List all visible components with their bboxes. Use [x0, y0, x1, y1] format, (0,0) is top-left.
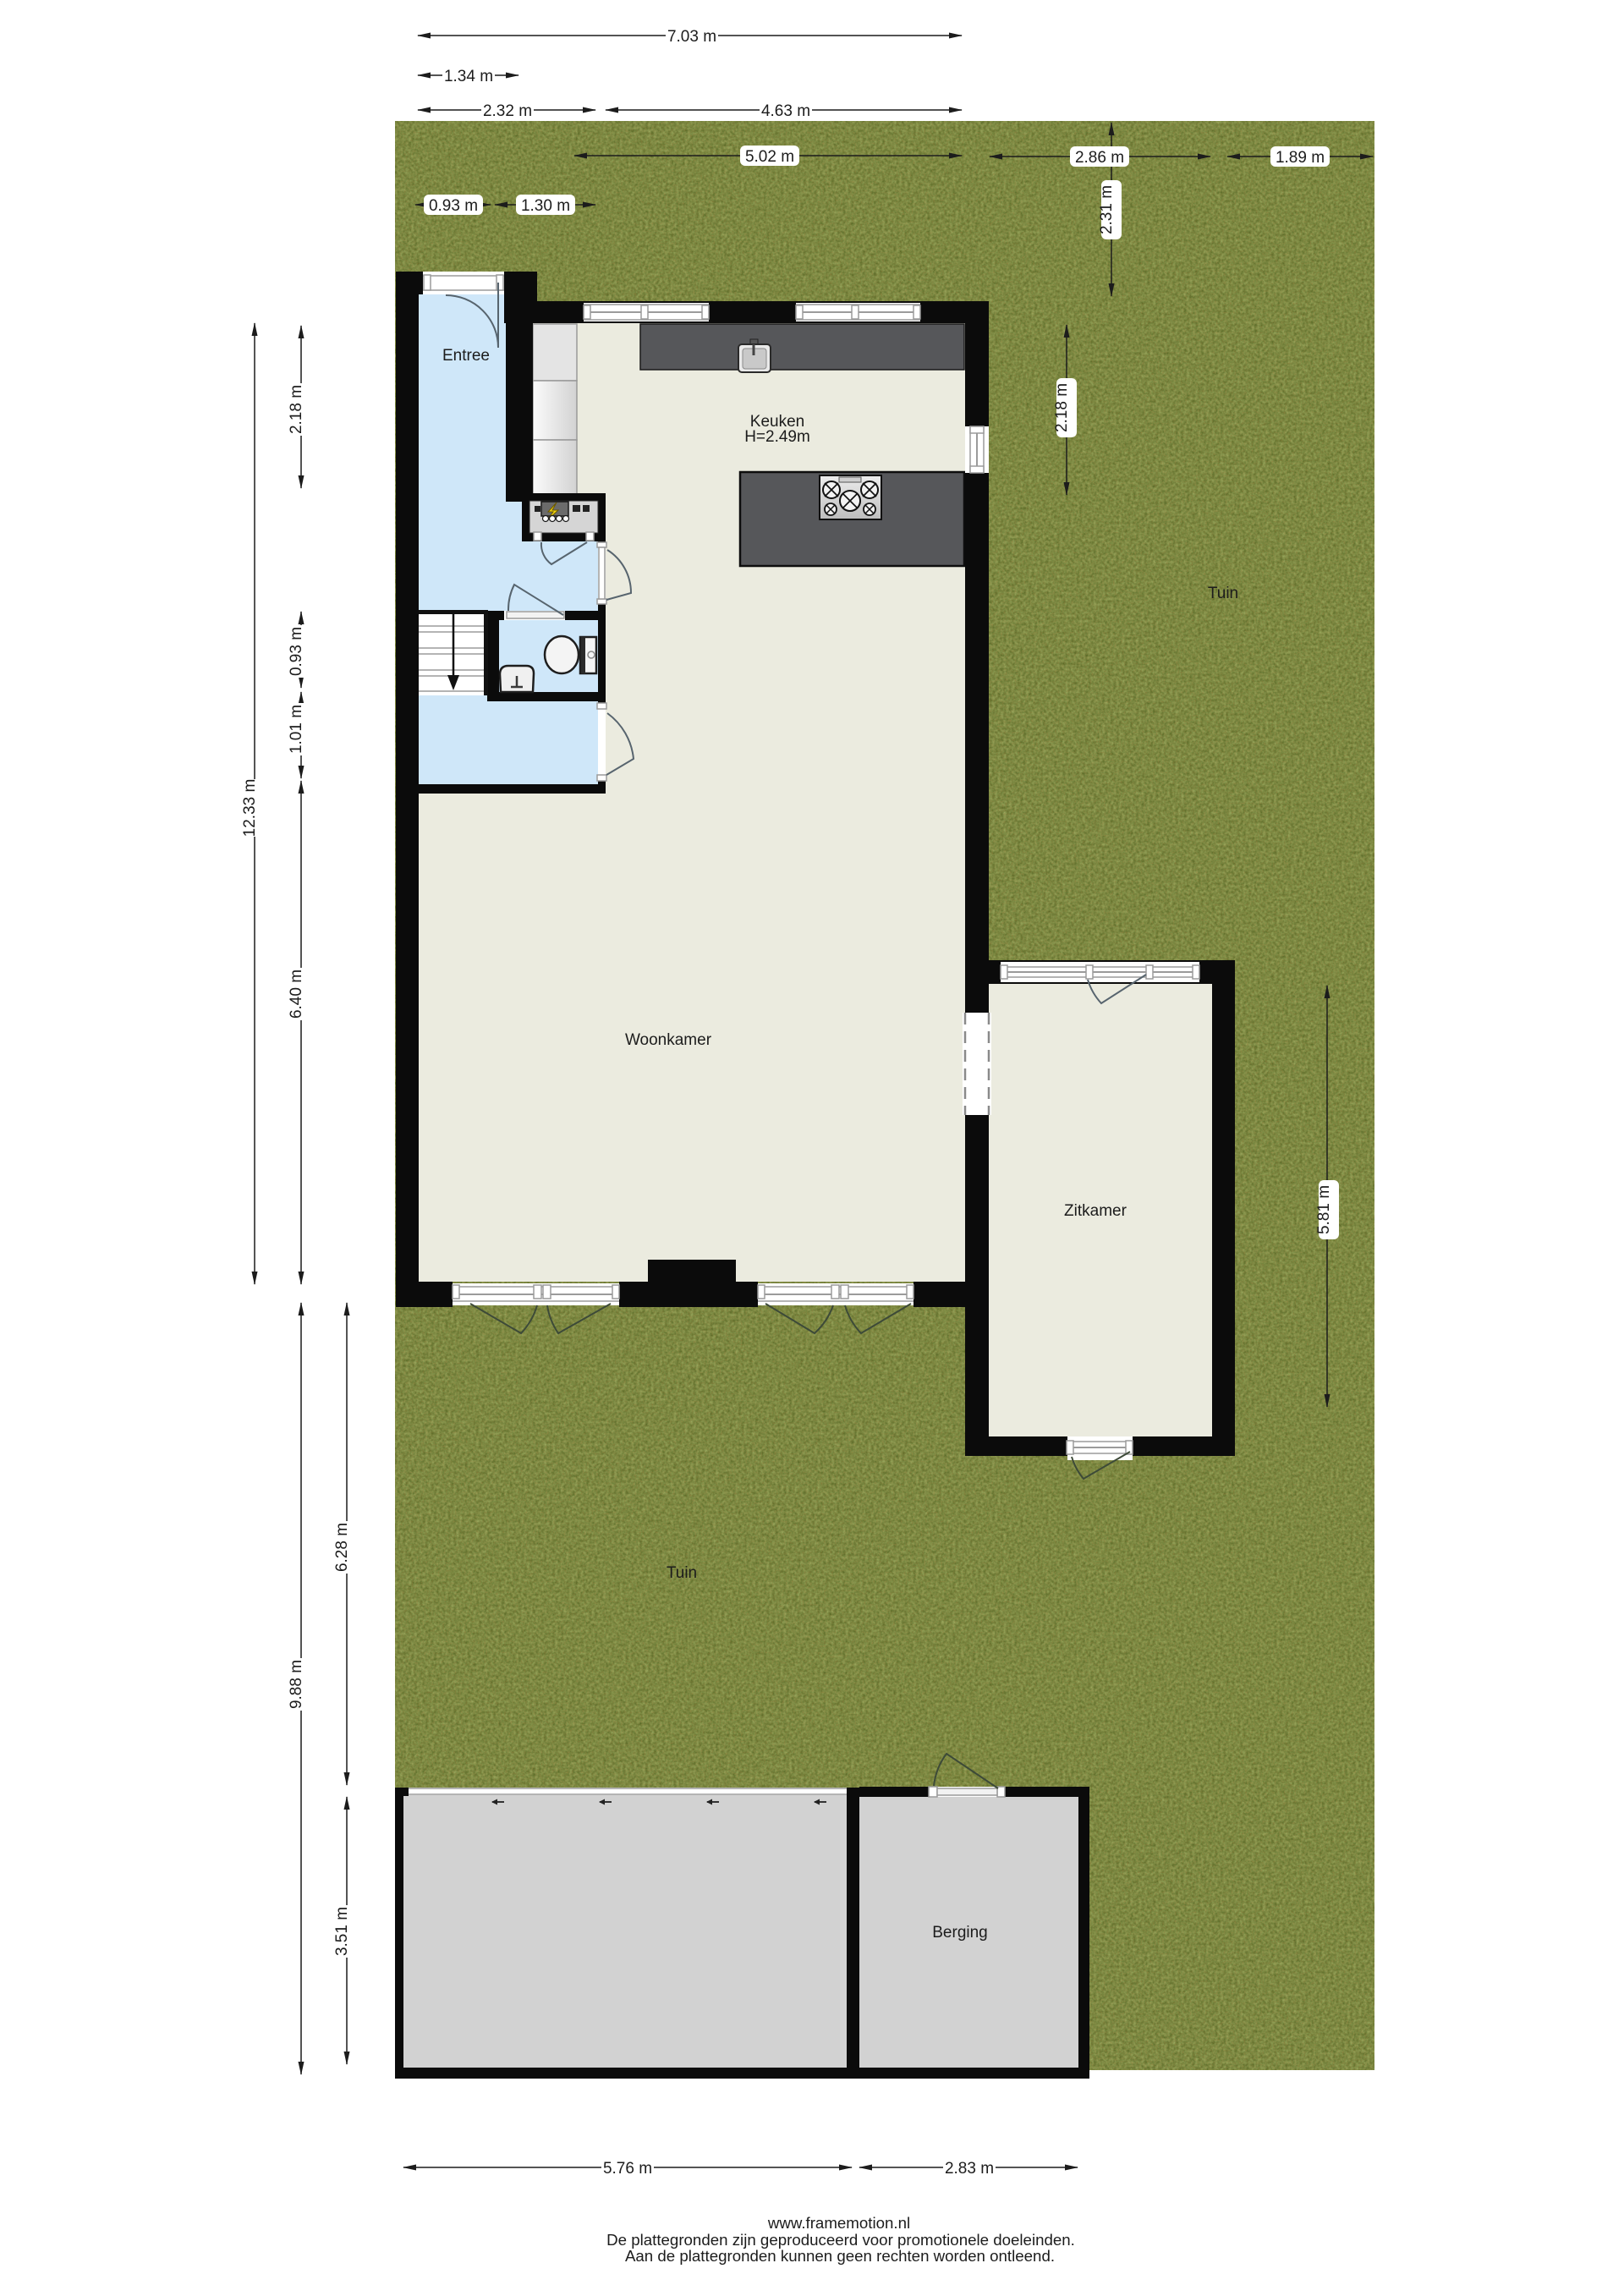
- svg-text:1.89 m: 1.89 m: [1276, 149, 1325, 167]
- svg-text:2.18 m: 2.18 m: [288, 385, 305, 434]
- svg-text:9.88 m: 9.88 m: [288, 1660, 305, 1709]
- svg-text:www.framemotion.nl: www.framemotion.nl: [767, 2214, 910, 2232]
- svg-text:4.63 m: 4.63 m: [761, 102, 810, 120]
- svg-text:6.40 m: 6.40 m: [288, 969, 305, 1019]
- svg-text:5.02 m: 5.02 m: [745, 148, 794, 166]
- svg-text:Entree: Entree: [442, 347, 490, 365]
- svg-text:Tuin: Tuin: [667, 1564, 697, 1582]
- svg-text:Berging: Berging: [932, 1924, 988, 1942]
- svg-text:7.03 m: 7.03 m: [667, 28, 716, 46]
- svg-text:6.28 m: 6.28 m: [333, 1523, 351, 1572]
- svg-text:Tuin: Tuin: [1208, 585, 1238, 602]
- svg-text:2.83 m: 2.83 m: [945, 2160, 994, 2178]
- svg-text:De plattegronden zijn geproduc: De plattegronden zijn geproduceerd voor …: [606, 2231, 1075, 2249]
- svg-text:5.76 m: 5.76 m: [603, 2160, 652, 2178]
- svg-text:H=2.49m: H=2.49m: [744, 428, 810, 446]
- svg-text:2.86 m: 2.86 m: [1075, 149, 1124, 167]
- svg-text:Woonkamer: Woonkamer: [625, 1031, 712, 1049]
- svg-text:3.51 m: 3.51 m: [333, 1907, 351, 1956]
- svg-text:5.81 m: 5.81 m: [1315, 1185, 1333, 1234]
- svg-text:0.93 m: 0.93 m: [288, 627, 305, 676]
- svg-text:0.93 m: 0.93 m: [429, 197, 478, 215]
- svg-text:2.18 m: 2.18 m: [1053, 383, 1071, 432]
- svg-text:1.30 m: 1.30 m: [521, 197, 570, 215]
- svg-text:Zitkamer: Zitkamer: [1064, 1202, 1127, 1220]
- svg-text:1.34 m: 1.34 m: [444, 68, 493, 85]
- svg-text:12.33 m: 12.33 m: [241, 779, 259, 838]
- svg-text:2.32 m: 2.32 m: [483, 102, 532, 120]
- svg-text:1.01 m: 1.01 m: [288, 705, 305, 754]
- svg-text:Aan de plattegronden kunnen ge: Aan de plattegronden kunnen geen rechten…: [625, 2247, 1055, 2265]
- svg-text:2.31 m: 2.31 m: [1098, 185, 1116, 234]
